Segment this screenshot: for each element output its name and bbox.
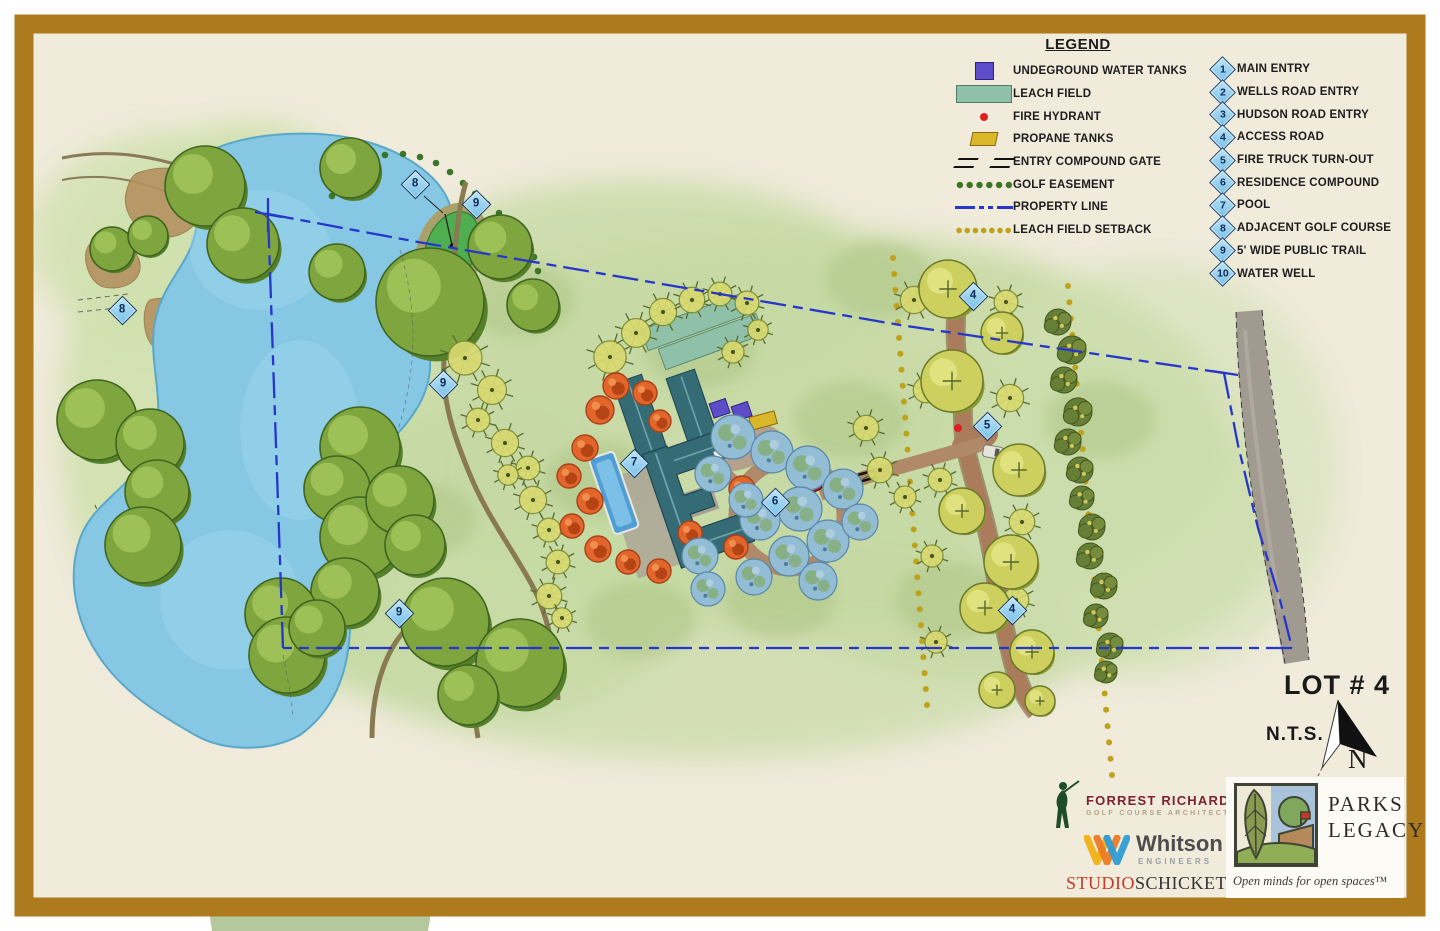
entry-compound-gate-symbol	[956, 157, 1012, 167]
legend-numbered-item-7: 7POOL	[1207, 194, 1391, 217]
parks-legacy-name: PARKS LEGACY	[1328, 791, 1425, 844]
studio-part: STUDIO	[1066, 873, 1135, 893]
leach-field-symbol	[956, 85, 1012, 103]
legend-item-label: RESIDENCE COMPOUND	[1237, 177, 1379, 189]
golfer-icon	[1046, 780, 1080, 830]
legend-item-label: PROPANE TANKS	[1013, 133, 1114, 145]
water-tank-symbol	[975, 62, 994, 80]
lot-label: LOT # 4	[1284, 670, 1390, 701]
legend-item-label: FIRE TRUCK TURN-OUT	[1237, 154, 1374, 166]
parks-legacy-scene-icon	[1237, 786, 1315, 864]
property-line-symbol	[955, 206, 1013, 209]
map-marker-7: 7	[624, 453, 645, 474]
map-marker-6: 6	[765, 492, 786, 513]
map-marker-5: 5	[977, 416, 998, 437]
diamond-4-icon: 4	[998, 596, 1028, 626]
legend-item-property-line: PROPERTY LINE	[955, 196, 1201, 219]
legend-item-label: HUDSON ROAD ENTRY	[1237, 109, 1369, 121]
golf-easement-symbol	[955, 181, 1013, 189]
legend-item-entry-compound-gate: ENTRY COMPOUND GATE	[955, 151, 1201, 174]
diamond-7-icon: 7	[620, 449, 650, 479]
map-marker-8: 8	[112, 300, 133, 321]
diamond-5-icon: 5	[973, 412, 1003, 442]
legend-item-label: ADJACENT GOLF COURSE	[1237, 222, 1391, 234]
legend-item-label: FIRE HYDRANT	[1013, 111, 1101, 123]
legend-item-leach-field: LEACH FIELD	[955, 83, 1201, 106]
legend-title: LEGEND	[955, 36, 1201, 56]
legend-item-label: LEACH FIELD SETBACK	[1013, 224, 1152, 236]
parks-legacy-emblem	[1234, 783, 1318, 867]
parks-legacy-panel: PARKS LEGACY Open minds for open spaces™	[1226, 777, 1404, 898]
legend-item-propane-tanks: PROPANE TANKS	[955, 128, 1201, 151]
legend-item-fire-hydrant: FIRE HYDRANT	[955, 105, 1201, 128]
parks-legacy-tagline: Open minds for open spaces™	[1233, 874, 1387, 889]
legend-numbered-item-2: 2WELLS ROAD ENTRY	[1207, 81, 1391, 104]
legend-item-label: POOL	[1237, 199, 1270, 211]
legend-item-label: WATER WELL	[1237, 268, 1315, 280]
legend-numbered-item-5: 5FIRE TRUCK TURN-OUT	[1207, 149, 1391, 172]
legend-item-golf-easement: GOLF EASEMENT	[955, 173, 1201, 196]
legend-item-label: UNDEGROUND WATER TANKS	[1013, 65, 1187, 77]
legend-symbol-column: LEGEND UNDEGROUND WATER TANKSLEACH FIELD…	[955, 36, 1201, 285]
diamond-4-icon: 4	[959, 282, 989, 312]
legend-numbered-item-1: 1MAIN ENTRY	[1207, 58, 1391, 81]
north-letter: N	[1348, 744, 1368, 774]
diamond-10-icon: 10	[1209, 260, 1236, 287]
legend-numbered-item-10: 10WATER WELL	[1207, 262, 1391, 285]
legend-item-label: ENTRY COMPOUND GATE	[1013, 156, 1161, 168]
diamond-9-icon: 9	[429, 370, 459, 400]
map-marker-4: 4	[963, 286, 984, 307]
fire-hydrant-symbol	[980, 113, 988, 121]
legend-numbered-column: 1MAIN ENTRY2WELLS ROAD ENTRY3HUDSON ROAD…	[1207, 36, 1391, 285]
legend-item-label: 5' WIDE PUBLIC TRAIL	[1237, 245, 1366, 257]
propane-tanks-symbol	[970, 132, 999, 146]
scale-label: N.T.S.	[1266, 724, 1324, 746]
map-marker-9: 9	[433, 374, 454, 395]
legend-numbered-item-6: 6RESIDENCE COMPOUND	[1207, 171, 1391, 194]
legend-item-label: GOLF EASEMENT	[1013, 179, 1115, 191]
diamond-9-icon: 9	[462, 190, 492, 220]
legend-item-leach-field-setback: LEACH FIELD SETBACK	[955, 219, 1201, 242]
whitson-name: Whitson	[1136, 833, 1223, 855]
whitson-engineers-logo: Whitson ENGINEERS	[1084, 833, 1223, 866]
map-marker-8: 8	[405, 174, 426, 195]
diamond-8-icon: 8	[108, 296, 138, 326]
legend-item-water-tank: UNDEGROUND WATER TANKS	[955, 60, 1201, 83]
legend-numbered-item-9: 95' WIDE PUBLIC TRAIL	[1207, 240, 1391, 263]
leach-field-setback-symbol	[955, 227, 1013, 234]
legend-item-label: MAIN ENTRY	[1237, 63, 1310, 75]
legend-item-label: LEACH FIELD	[1013, 88, 1091, 100]
map-marker-9: 9	[389, 603, 410, 624]
legend-item-label: ACCESS ROAD	[1237, 131, 1324, 143]
site-plan-sheet: N LEGEND UNDEGROUND WATER TANKSLEACH FIE…	[0, 0, 1440, 931]
diamond-8-icon: 8	[401, 170, 431, 200]
legend-item-label: PROPERTY LINE	[1013, 201, 1108, 213]
diamond-6-icon: 6	[761, 488, 791, 518]
whitson-sub: ENGINEERS	[1138, 857, 1223, 866]
map-marker-4: 4	[1002, 600, 1023, 621]
map-marker-9: 9	[466, 194, 487, 215]
diamond-9-icon: 9	[385, 599, 415, 629]
whitson-w-icon	[1084, 835, 1130, 865]
legend-item-label: WELLS ROAD ENTRY	[1237, 86, 1359, 98]
legend-numbered-item-3: 3HUDSON ROAD ENTRY	[1207, 103, 1391, 126]
legend-numbered-item-8: 8ADJACENT GOLF COURSE	[1207, 217, 1391, 240]
legend-numbered-item-4: 4ACCESS ROAD	[1207, 126, 1391, 149]
legend: LEGEND UNDEGROUND WATER TANKSLEACH FIELD…	[955, 36, 1391, 285]
